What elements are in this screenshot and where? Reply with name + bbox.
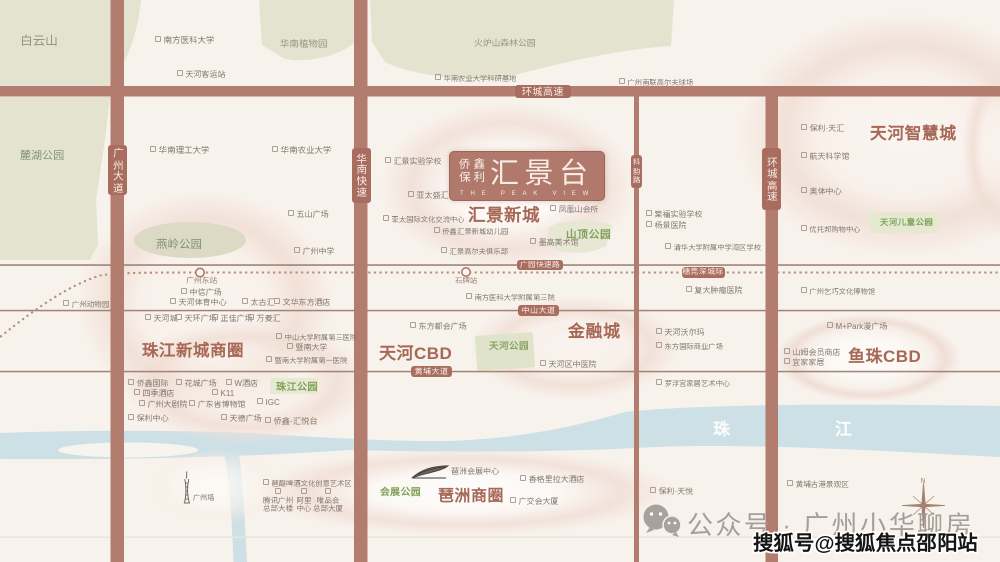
svg-text:N: N (921, 478, 926, 485)
